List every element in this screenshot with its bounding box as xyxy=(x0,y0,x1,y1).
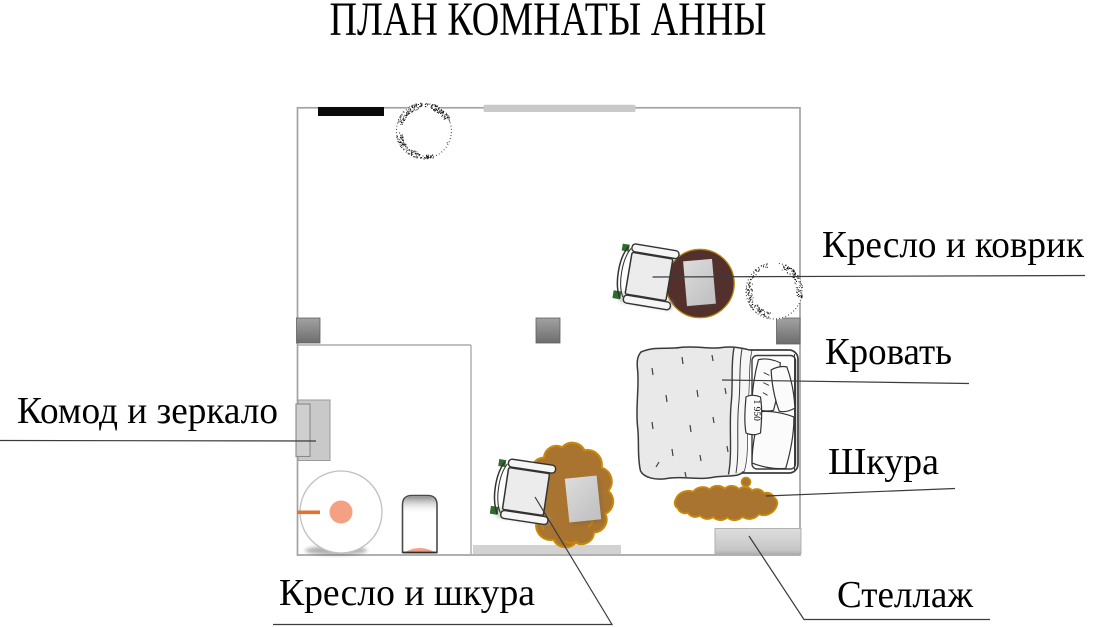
svg-text:Кровать: Кровать xyxy=(825,331,952,373)
svg-text:Комод и зеркало: Комод и зеркало xyxy=(17,390,278,432)
svg-text:Шкура: Шкура xyxy=(828,441,939,483)
svg-text:ПЛАН КОМНАТЫ АННЫ: ПЛАН КОМНАТЫ АННЫ xyxy=(330,0,767,46)
svg-text:Кресло и коврик: Кресло и коврик xyxy=(822,224,1084,266)
svg-text:Кресло и шкура: Кресло и шкура xyxy=(279,572,535,614)
svg-text:Стеллаж: Стеллаж xyxy=(837,574,973,616)
svg-text:1 950: 1 950 xyxy=(751,400,761,422)
